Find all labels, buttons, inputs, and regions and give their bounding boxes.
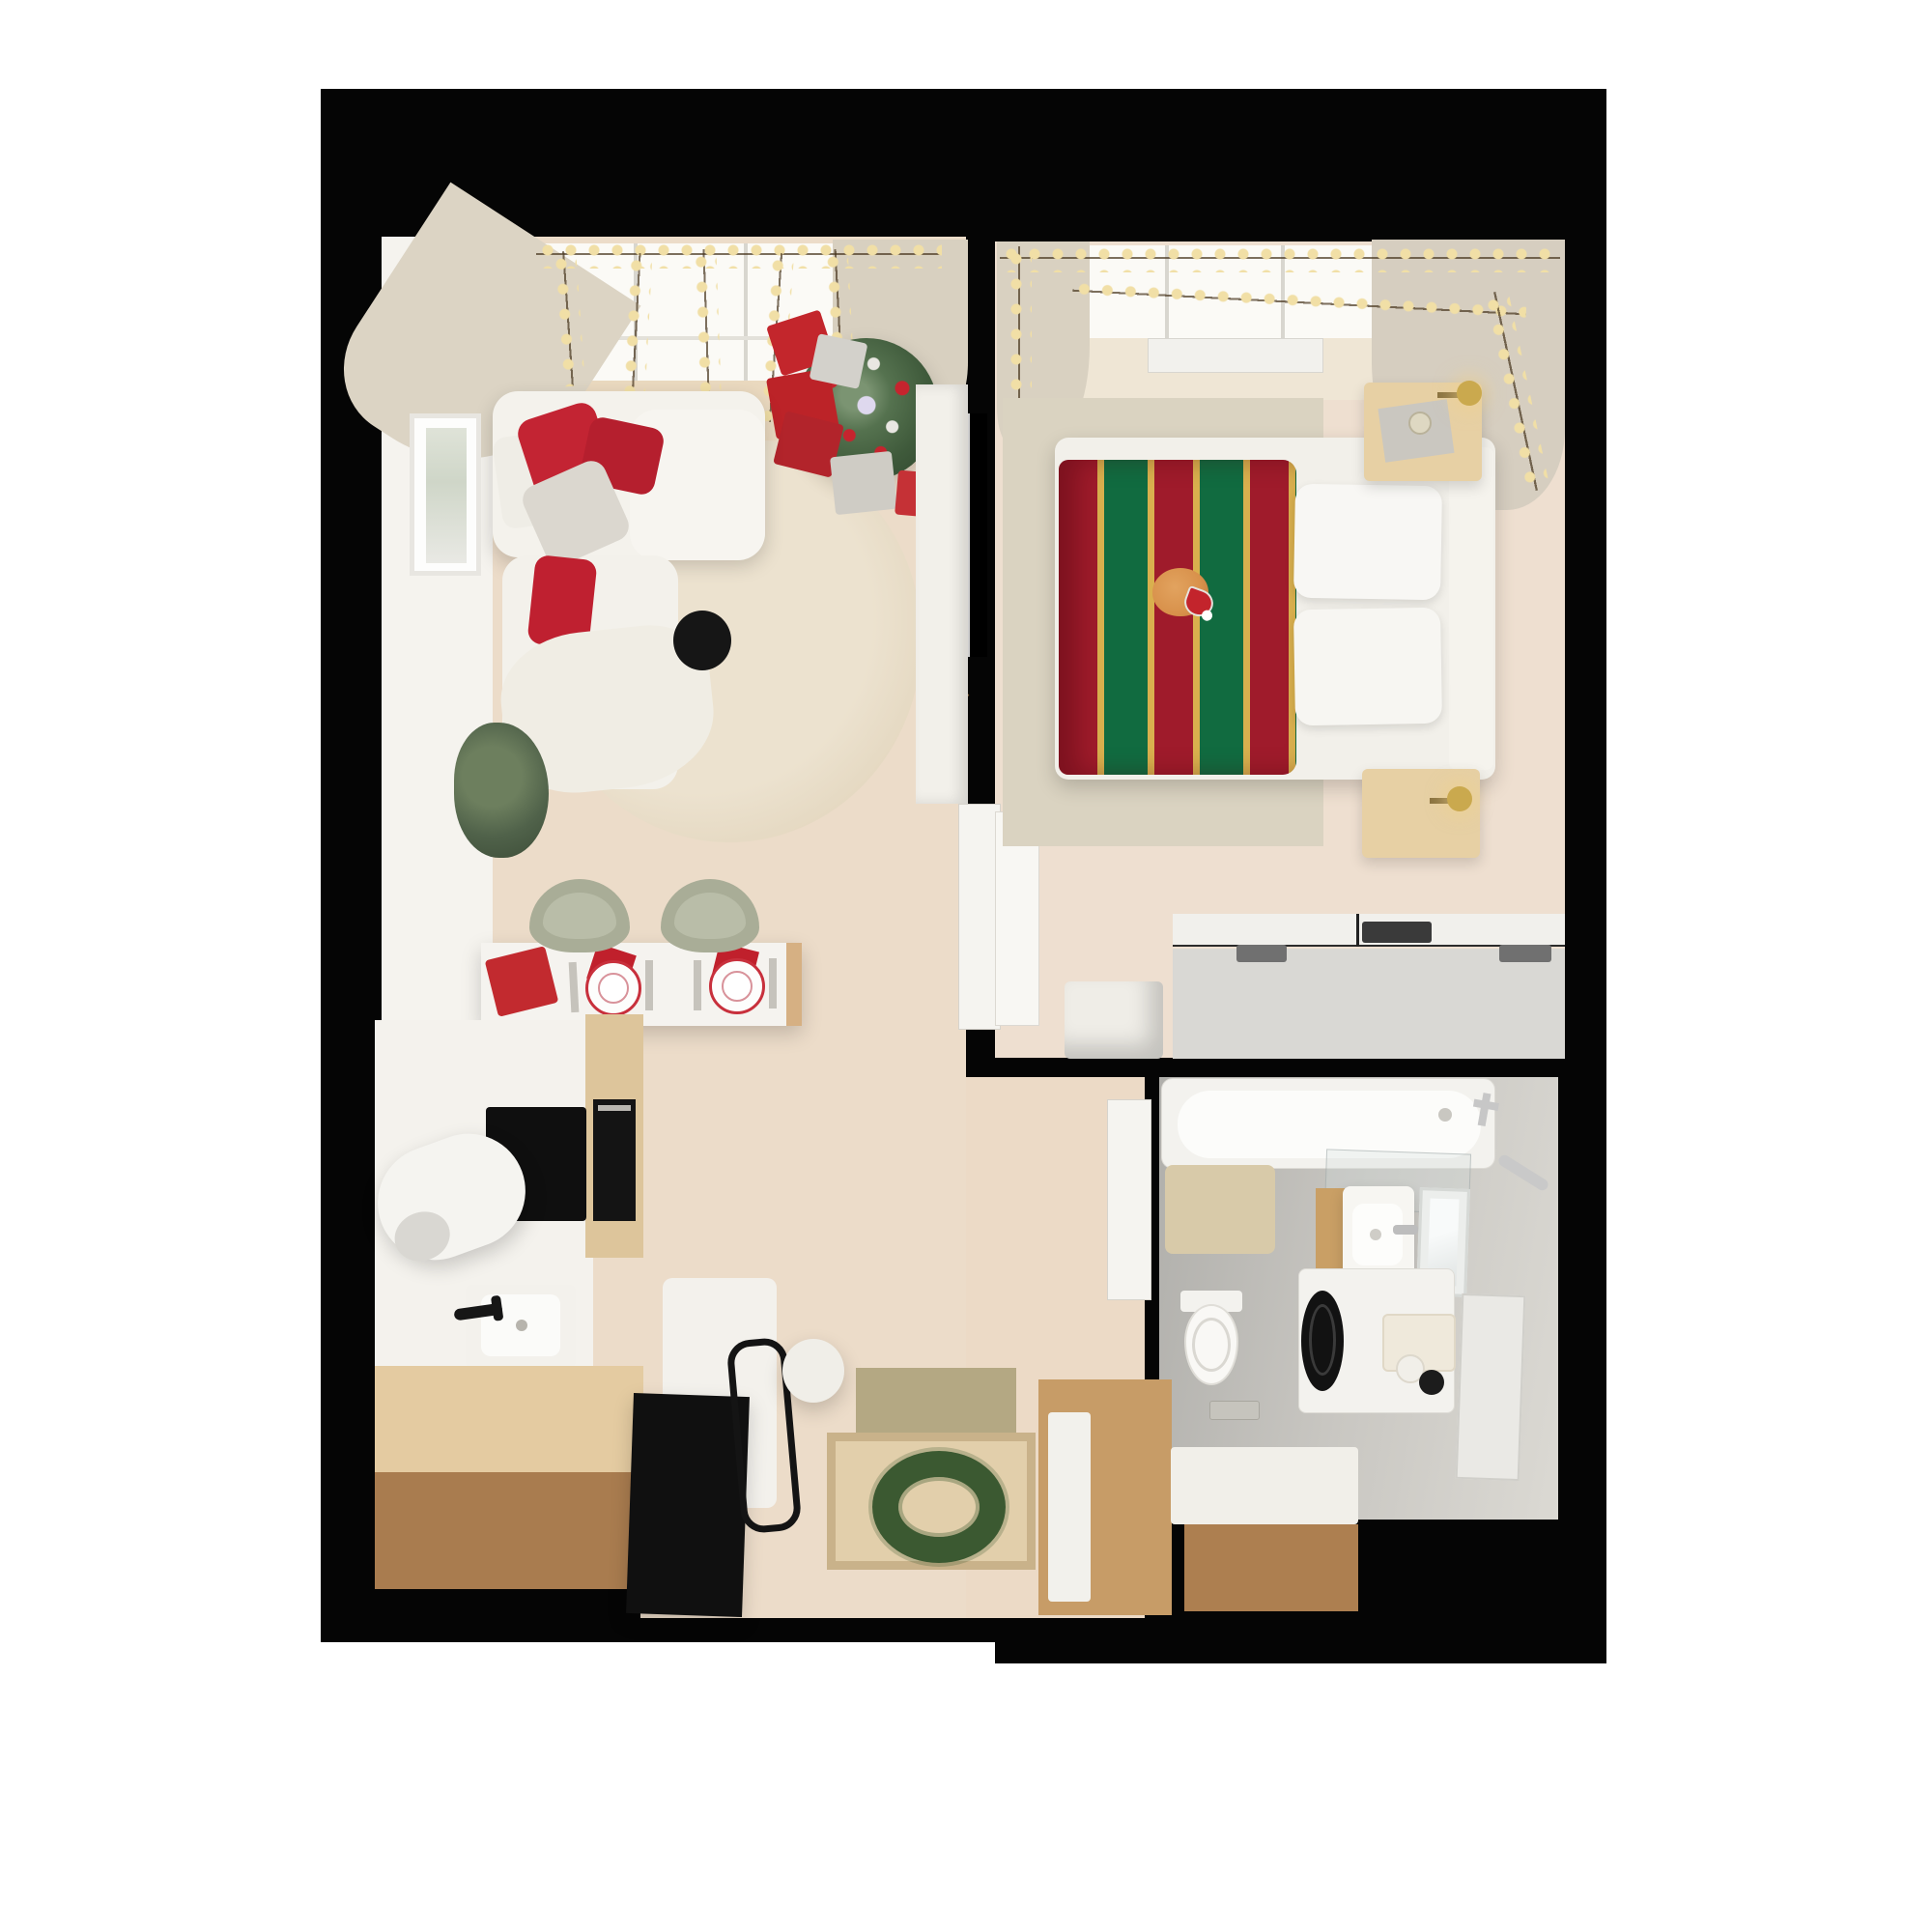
wall-art-print xyxy=(426,428,467,563)
radiator-bedroom xyxy=(1148,338,1323,373)
washer-door-ring xyxy=(1309,1304,1336,1376)
toilet-seat-ring xyxy=(1192,1318,1231,1372)
bed-headboard xyxy=(1449,447,1493,770)
kitchen-sink xyxy=(466,1285,576,1368)
dinner-plate xyxy=(585,960,641,1016)
sink-tap-chrome xyxy=(1393,1225,1418,1235)
bench-handle xyxy=(1499,945,1551,962)
kitchen-wood-counter xyxy=(375,1366,643,1472)
bench-front xyxy=(1173,949,1565,1059)
sink-drain xyxy=(516,1320,527,1331)
towel-roll-black xyxy=(1419,1370,1444,1395)
bench-handle xyxy=(1236,945,1287,962)
potted-plant xyxy=(454,723,549,858)
plate-inner-ring xyxy=(722,971,753,1002)
wardrobe-white-front xyxy=(1048,1412,1091,1602)
bathtub-basin xyxy=(1178,1091,1481,1158)
bath-bench-white-top xyxy=(1171,1447,1358,1524)
kitchen-tall-cabinet xyxy=(585,1014,643,1258)
towel-radiator-ladder xyxy=(1456,1293,1526,1481)
wall-sconce-brass xyxy=(1430,784,1472,823)
string-lights-bedroom-top xyxy=(1000,243,1560,272)
cutlery xyxy=(769,958,777,1009)
toilet xyxy=(1179,1291,1244,1387)
cutlery xyxy=(694,960,701,1010)
wall-sconce-brass xyxy=(1437,377,1480,417)
leaning-tv-black xyxy=(626,1393,750,1617)
string-lights-strand xyxy=(691,249,721,395)
washing-machine xyxy=(1298,1268,1455,1413)
gift-box-silver xyxy=(810,333,868,389)
built-in-oven xyxy=(593,1099,636,1221)
chair-seat xyxy=(674,893,746,939)
floor-drain xyxy=(1209,1401,1260,1420)
sconce-head xyxy=(1447,786,1472,811)
hall-wardrobe-wood xyxy=(1038,1379,1172,1615)
sink-drain xyxy=(1370,1229,1381,1240)
cutlery xyxy=(645,960,653,1010)
bedfoot-chest-white xyxy=(1065,981,1163,1059)
tall-cabinet-white xyxy=(916,384,968,804)
bathroom-door xyxy=(1107,1099,1151,1300)
gift-box-silver xyxy=(830,451,897,515)
counter-wood-end xyxy=(786,943,802,1026)
candle xyxy=(1408,412,1432,435)
wall-tv-living xyxy=(968,413,987,657)
bath-bench-wood-front xyxy=(1184,1524,1358,1611)
bed-pillow xyxy=(1293,484,1442,601)
wall-art-frame xyxy=(410,413,481,576)
bed-blanket-striped xyxy=(1059,460,1296,775)
apartment-floor-plan xyxy=(0,0,1932,1932)
dinner-plate xyxy=(709,958,765,1014)
bench-lid-recess xyxy=(1362,922,1432,943)
string-lights-living-top xyxy=(536,240,942,269)
sconce-head xyxy=(1457,381,1482,406)
plate-inner-ring xyxy=(598,973,629,1004)
side-table-black xyxy=(673,611,731,670)
oven-handle xyxy=(598,1105,631,1111)
bathtub-drain xyxy=(1438,1108,1452,1122)
pouf-round-white xyxy=(782,1339,844,1403)
kitchen-wood-base-front xyxy=(375,1472,643,1589)
bed-pillow xyxy=(1293,608,1442,726)
chair-seat xyxy=(543,893,616,939)
christmas-wreath xyxy=(872,1451,1006,1563)
bench-lid-seam xyxy=(1356,914,1359,947)
bath-mat xyxy=(1165,1165,1275,1254)
storage-bench-bedroom xyxy=(1173,914,1565,1059)
building-walls-lower-right xyxy=(995,1642,1606,1663)
